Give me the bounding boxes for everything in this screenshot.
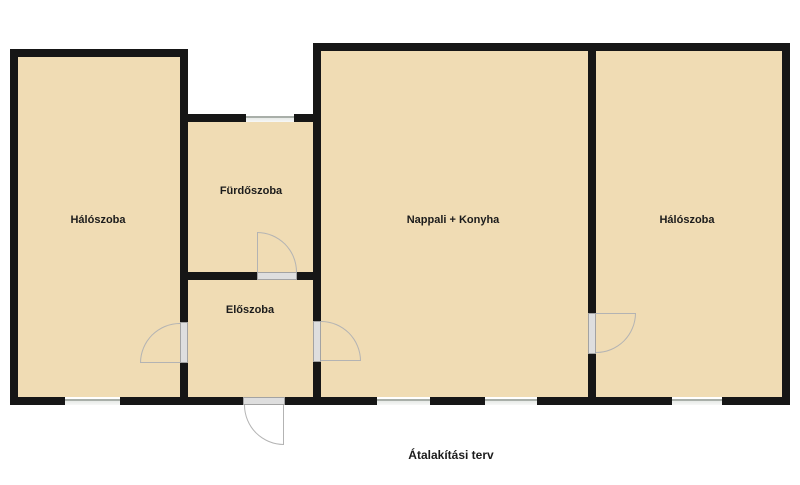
room-bathroom-hallway <box>180 114 321 405</box>
floor-plan: Hálószoba Fürdőszoba Előszoba Nappali + … <box>0 0 800 485</box>
window-bedroom-left <box>65 397 120 405</box>
wall-left-exterior <box>10 49 18 405</box>
label-hallway: Előszoba <box>226 304 274 316</box>
window-bathroom <box>246 114 294 122</box>
room-living-and-bedroom-right <box>313 43 790 405</box>
wall-bathroom-hallway <box>180 272 321 280</box>
window-living-2 <box>485 397 537 405</box>
door-slab-bathroom <box>257 272 297 280</box>
window-bedroom-right <box>672 397 722 405</box>
door-slab-hallway-living <box>313 321 321 362</box>
wall-top-left-bedroom <box>10 49 188 57</box>
label-bathroom: Fürdőszoba <box>220 185 282 197</box>
door-slab-bedroom-right <box>588 313 596 354</box>
label-bedroom-right: Hálószoba <box>659 214 714 226</box>
wall-top-living-bedroom <box>313 43 790 51</box>
door-swing-entrance-icon <box>244 405 284 445</box>
plan-caption: Átalakítási terv <box>408 448 493 462</box>
door-slab-bedroom-left <box>180 322 188 363</box>
door-slab-entrance <box>243 397 285 405</box>
label-bedroom-left: Hálószoba <box>70 214 125 226</box>
label-living-kitchen: Nappali + Konyha <box>407 214 500 226</box>
wall-right-exterior <box>782 43 790 405</box>
window-living-1 <box>377 397 430 405</box>
